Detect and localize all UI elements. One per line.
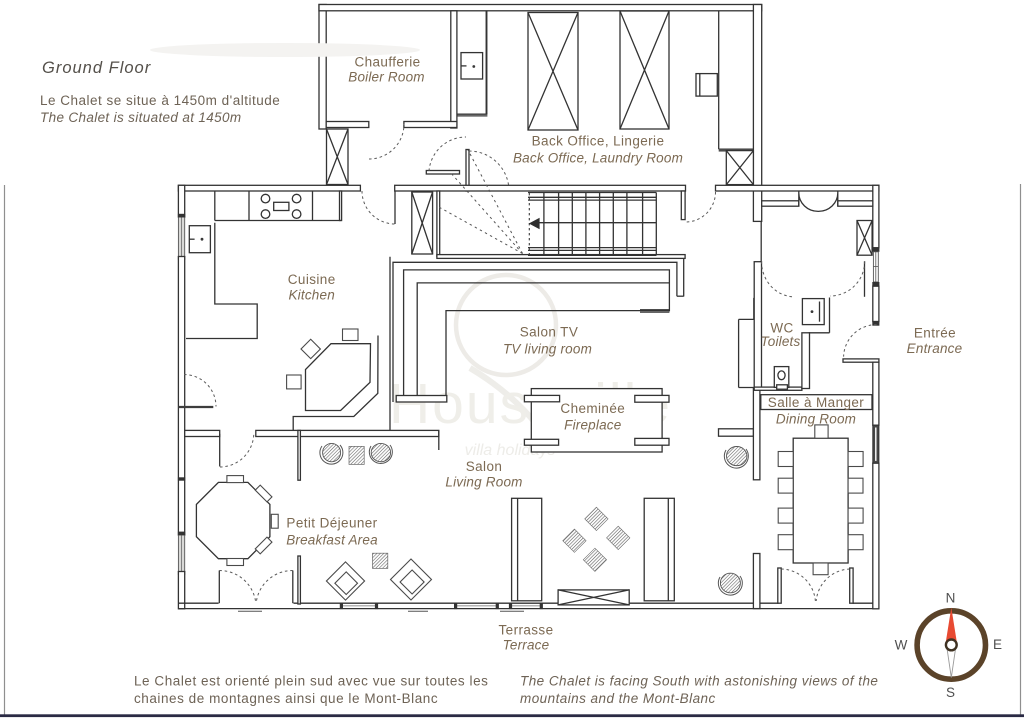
- svg-text:Back Office, Laundry Room: Back Office, Laundry Room: [513, 151, 683, 166]
- svg-text:Kitchen: Kitchen: [288, 288, 334, 303]
- svg-text:Terrasse: Terrasse: [499, 623, 554, 638]
- svg-text:Living Room: Living Room: [445, 475, 522, 490]
- svg-text:mountains and the Mont-Blanc: mountains and the Mont-Blanc: [520, 691, 716, 706]
- svg-text:Ground Floor: Ground Floor: [42, 59, 152, 77]
- svg-text:E: E: [993, 637, 1002, 652]
- svg-text:Le Chalet se situe à 1450m d'a: Le Chalet se situe à 1450m d'altitude: [40, 93, 280, 108]
- svg-text:Toilets: Toilets: [761, 334, 801, 349]
- svg-text:Breakfast Area: Breakfast Area: [286, 533, 378, 548]
- svg-text:chaines de montagnes ainsi que: chaines de montagnes ainsi que le Mont-B…: [134, 691, 438, 706]
- svg-text:Salon TV: Salon TV: [520, 325, 579, 340]
- svg-text:W: W: [895, 638, 908, 653]
- svg-text:Salle à Manger: Salle à Manger: [768, 395, 865, 410]
- svg-text:Terrace: Terrace: [503, 638, 550, 653]
- svg-text:Dining Room: Dining Room: [776, 412, 856, 427]
- svg-text:Cuisine: Cuisine: [288, 272, 336, 287]
- svg-text:Entrée: Entrée: [914, 326, 956, 341]
- svg-text:The Chalet is situated at 1450: The Chalet is situated at 1450m: [40, 110, 241, 125]
- svg-text:N: N: [946, 591, 956, 606]
- svg-text:TV living room: TV living room: [503, 342, 592, 357]
- svg-text:Entrance: Entrance: [907, 341, 963, 356]
- svg-text:Boiler Room: Boiler Room: [348, 70, 424, 85]
- svg-text:S: S: [946, 685, 955, 700]
- svg-text:Fireplace: Fireplace: [564, 418, 621, 433]
- svg-text:Petit Déjeuner: Petit Déjeuner: [286, 516, 377, 531]
- svg-text:Salon: Salon: [466, 459, 503, 474]
- svg-text:Back Office, Lingerie: Back Office, Lingerie: [532, 134, 665, 149]
- svg-text:The Chalet is facing South wit: The Chalet is facing South with astonish…: [520, 674, 878, 689]
- svg-text:Le Chalet est orienté plein su: Le Chalet est orienté plein sud avec vue…: [134, 674, 488, 689]
- svg-text:Chaufferie: Chaufferie: [354, 55, 420, 70]
- svg-text:Cheminée: Cheminée: [560, 401, 625, 416]
